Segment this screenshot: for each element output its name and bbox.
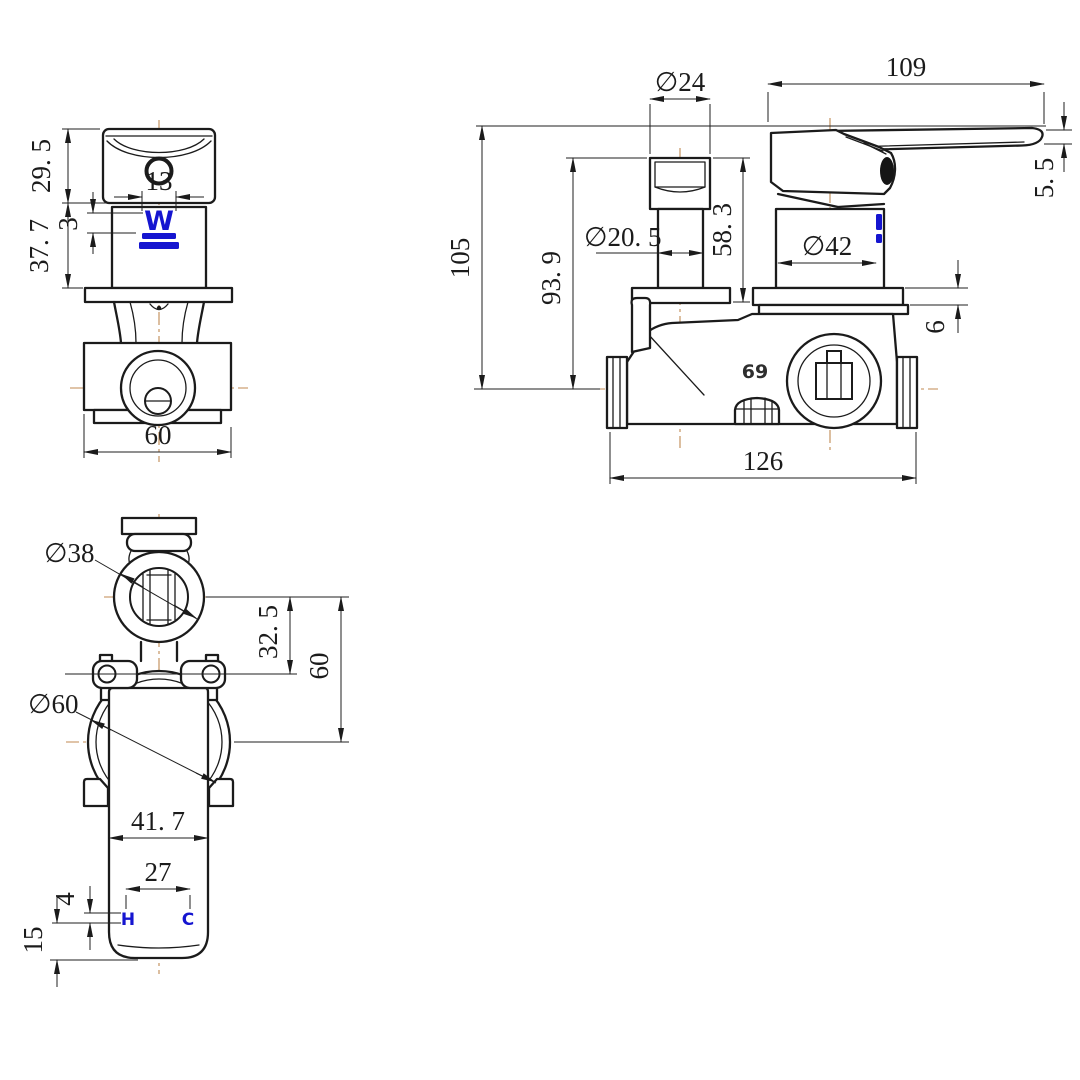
dim-handle-thickness: 5. 5 <box>1029 158 1059 199</box>
body-right-tab <box>209 779 233 806</box>
dim-logo-width: 13 <box>146 166 173 196</box>
dim-marking-offset: 15 <box>18 927 48 954</box>
faucet-mixer-drawing: W 29. 5 37. 7 13 3 <box>0 0 1080 1080</box>
casting-lug <box>632 298 651 352</box>
cartridge-escutcheon <box>753 288 903 305</box>
neck-right-inner <box>182 302 188 343</box>
dim-logo-offset: 3 <box>53 217 83 231</box>
dim-stem-diameter: ∅20. 5 <box>584 222 662 252</box>
handle-pivot-pin <box>880 157 894 185</box>
top-view: H C ∅38 32. 5 60 ∅60 41. 7 27 4 15 <box>18 514 349 987</box>
side-view: 69 109 ∅24 5. 5 105 93. 9 58. 3 ∅20. 5 ∅… <box>445 52 1072 484</box>
knob-top-bar <box>122 518 196 534</box>
dim-lever-width: 41. 7 <box>131 806 185 836</box>
casting-mark-69: 69 <box>742 361 768 383</box>
watermark-text-bar-2 <box>139 242 179 249</box>
dim-knob-height: 93. 9 <box>536 251 566 305</box>
dim-axis-spacing: 60 <box>304 653 334 680</box>
wall-flange-front <box>85 288 232 302</box>
body-left-tab <box>84 779 108 806</box>
dim-handle-length: 109 <box>886 52 927 82</box>
watermark-logo: W <box>144 206 174 237</box>
diverter-knob <box>650 158 710 209</box>
side-watermark-bar-1 <box>876 214 882 230</box>
dim-marking-height: 4 <box>50 892 80 906</box>
front-view: W 29. 5 37. 7 13 3 <box>24 120 248 462</box>
port-square-broach <box>816 363 852 399</box>
hot-label: H <box>121 910 135 930</box>
side-watermark-bar-2 <box>876 234 882 243</box>
dim-cartridge-height: 58. 3 <box>707 203 737 257</box>
dim-body-diameter-top: ∅60 <box>28 689 79 719</box>
port-keyway <box>827 351 841 363</box>
dim-body-diameter: ∅42 <box>802 231 853 261</box>
cap-joint-line-1 <box>778 194 838 207</box>
technical-drawing-page: W 29. 5 37. 7 13 3 <box>0 0 1080 1080</box>
cap-joint-line-2 <box>838 204 884 207</box>
watermark-text-bar-1 <box>142 233 176 239</box>
neck-right-edge <box>197 302 204 343</box>
neck-left-inner <box>130 302 136 343</box>
cartridge-escutcheon-step <box>759 305 908 314</box>
diverter-stem <box>658 209 703 288</box>
dim-body-width: 126 <box>743 446 784 476</box>
right-pipe-flange <box>897 357 917 428</box>
neck-center-dot <box>157 306 161 310</box>
dim-plate-thickness: 6 <box>920 320 950 334</box>
dim-knob-diameter: ∅24 <box>655 67 706 97</box>
dim-overall-height: 105 <box>445 238 475 279</box>
neck-left-edge <box>114 302 121 343</box>
dim-knob-offset: 32. 5 <box>253 605 283 659</box>
dim-hc-spacing: 27 <box>145 857 172 887</box>
dim-cap-height: 29. 5 <box>26 139 56 193</box>
dim-body-height: 37. 7 <box>24 219 54 273</box>
knob-lever-top <box>127 534 191 551</box>
dim-base-width: 60 <box>145 420 172 450</box>
left-pipe-flange <box>607 357 627 428</box>
cold-label: C <box>182 910 194 930</box>
dim-knob-diameter-top: ∅38 <box>44 538 95 568</box>
